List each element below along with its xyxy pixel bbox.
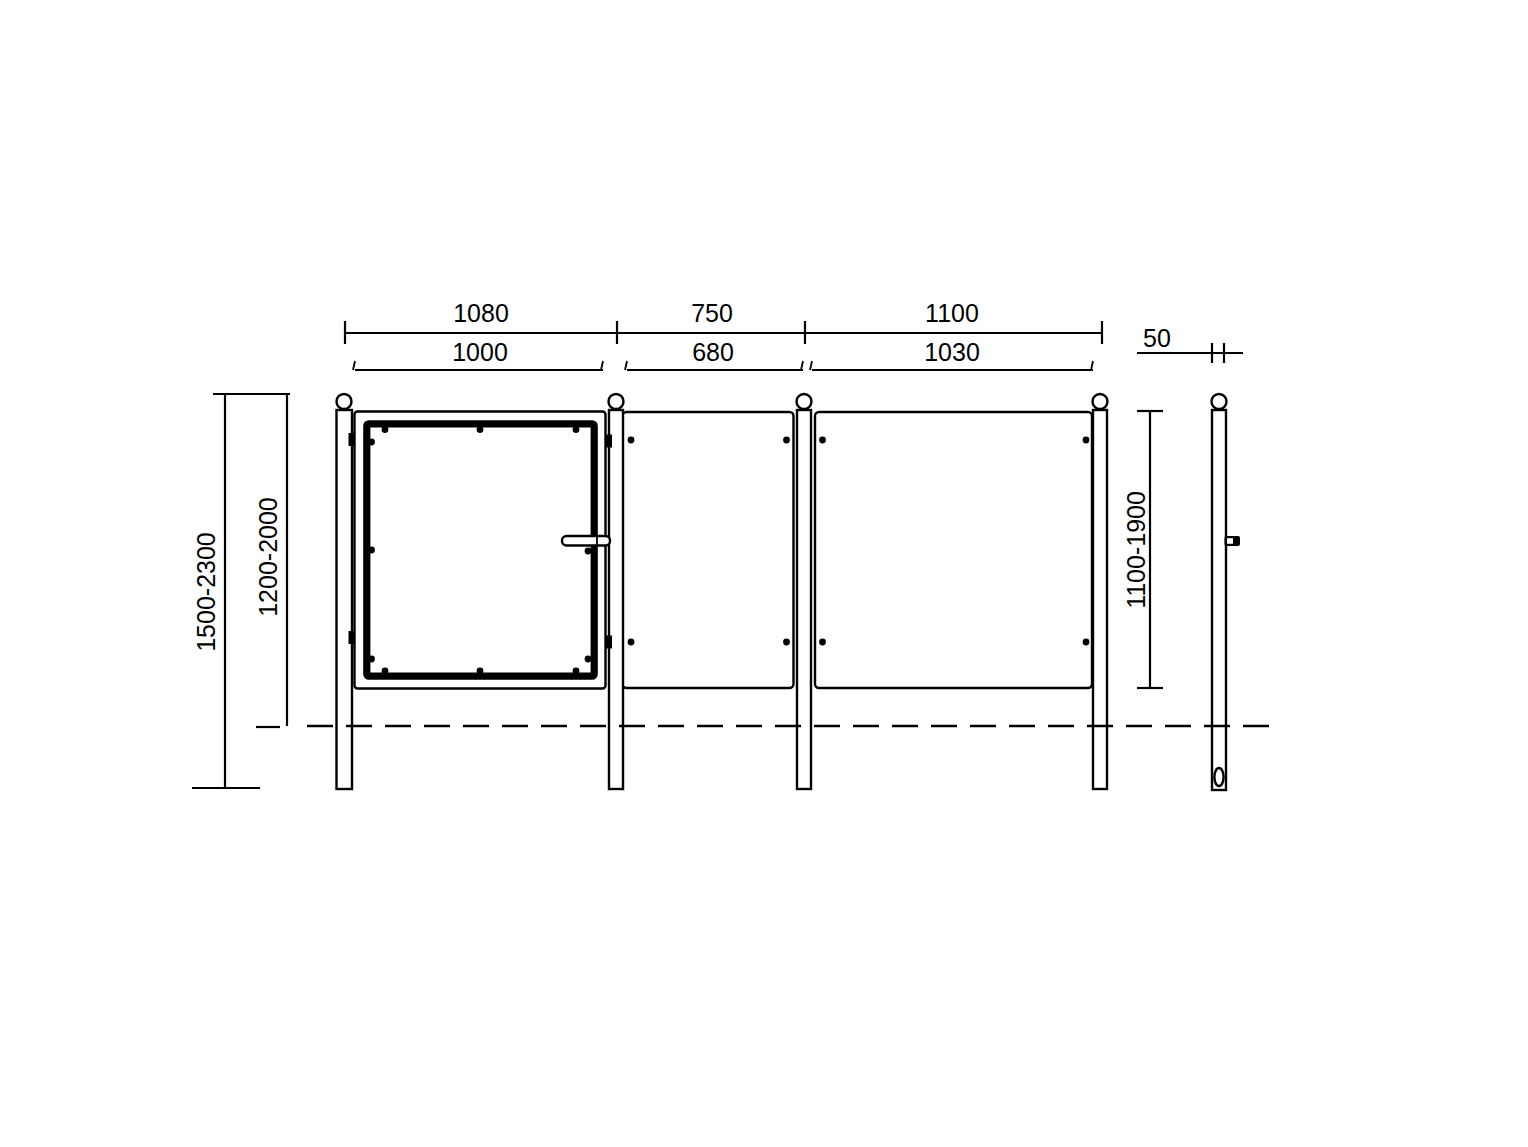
post-3-body xyxy=(797,410,811,789)
dim-label-span3-outer: 1100 xyxy=(925,299,979,327)
dim-label-span2-outer: 750 xyxy=(691,299,733,327)
panel-2-bolt xyxy=(783,437,790,444)
post-1 xyxy=(337,394,353,789)
gate-bolt xyxy=(477,668,484,675)
post-3 xyxy=(797,394,812,789)
dim-label-above-ground-height: 1200-2000 xyxy=(254,497,282,617)
gate-bracket-right-bottom xyxy=(605,636,612,649)
dim-tick xyxy=(353,361,355,370)
dimension-post-width: 50 xyxy=(1137,324,1243,363)
gate-bolt xyxy=(585,548,592,555)
fence-panel-2 xyxy=(623,412,794,688)
gate-panel xyxy=(349,412,613,689)
dim-tick xyxy=(601,361,603,370)
post-2-ball-cap xyxy=(609,394,624,409)
post-1-body xyxy=(337,410,353,789)
gate-bolt xyxy=(382,668,389,675)
gate-bracket-right-top xyxy=(605,435,612,448)
panel-3-bolt xyxy=(1083,437,1090,444)
gate-hinge-left-bottom xyxy=(349,631,356,644)
side-view-post xyxy=(1212,394,1241,790)
side-post-ball-cap xyxy=(1212,394,1227,409)
panel-3-bolt xyxy=(1083,639,1090,646)
dim-label-total-height: 1500-2300 xyxy=(192,532,220,652)
dimension-row-inner: 1000 680 1030 xyxy=(353,338,1093,370)
gate-bolt xyxy=(368,656,375,663)
post-4-ball-cap xyxy=(1093,394,1108,409)
dim-tick xyxy=(625,361,627,370)
dim-label-span2-inner: 680 xyxy=(692,338,734,366)
panel-3-bolt xyxy=(819,639,826,646)
dimension-panel-height: 1100-1900 xyxy=(1122,411,1163,688)
gate-bolt xyxy=(573,426,580,433)
post-1-ball-cap xyxy=(337,394,352,409)
side-post-ground-hole xyxy=(1214,768,1223,786)
post-2-body xyxy=(609,410,623,789)
dim-label-post-width: 50 xyxy=(1143,324,1171,352)
dim-tick xyxy=(810,361,812,370)
gate-bolt xyxy=(585,656,592,663)
panel-3-bolt xyxy=(819,437,826,444)
panel-2-bolt xyxy=(628,639,635,646)
dim-label-span1-outer: 1080 xyxy=(453,299,509,327)
panel-2-bolt xyxy=(628,437,635,444)
dimension-above-ground-height: 1200-2000 xyxy=(254,394,287,727)
dim-tick xyxy=(801,361,803,370)
gate-bolt xyxy=(368,547,375,554)
gate-outer-frame xyxy=(355,412,606,689)
post-3-ball-cap xyxy=(797,394,812,409)
dim-label-span3-inner: 1030 xyxy=(924,338,980,366)
post-2 xyxy=(609,394,624,789)
dim-label-panel-height: 1100-1900 xyxy=(1122,491,1150,609)
post-4-body xyxy=(1093,410,1107,789)
gate-bolt xyxy=(368,439,375,446)
side-post-body xyxy=(1212,410,1226,790)
gate-hinge-left-top xyxy=(349,433,356,446)
post-4 xyxy=(1093,394,1108,789)
gate-handle xyxy=(562,536,610,546)
drawing-canvas: 1080 750 1100 1000 680 1030 50 1500-2300… xyxy=(0,0,1528,1147)
fence-panel-3 xyxy=(815,412,1092,688)
gate-bolt xyxy=(477,426,484,433)
panel-2-bolt xyxy=(783,639,790,646)
gate-bolt xyxy=(573,668,580,675)
side-post-latch-hole xyxy=(1227,538,1233,544)
gate-bolt xyxy=(382,426,389,433)
panel-3-outline xyxy=(815,412,1092,688)
dim-label-span1-inner: 1000 xyxy=(452,338,508,366)
panel-2-outline xyxy=(623,412,794,688)
dim-tick xyxy=(1091,361,1093,370)
